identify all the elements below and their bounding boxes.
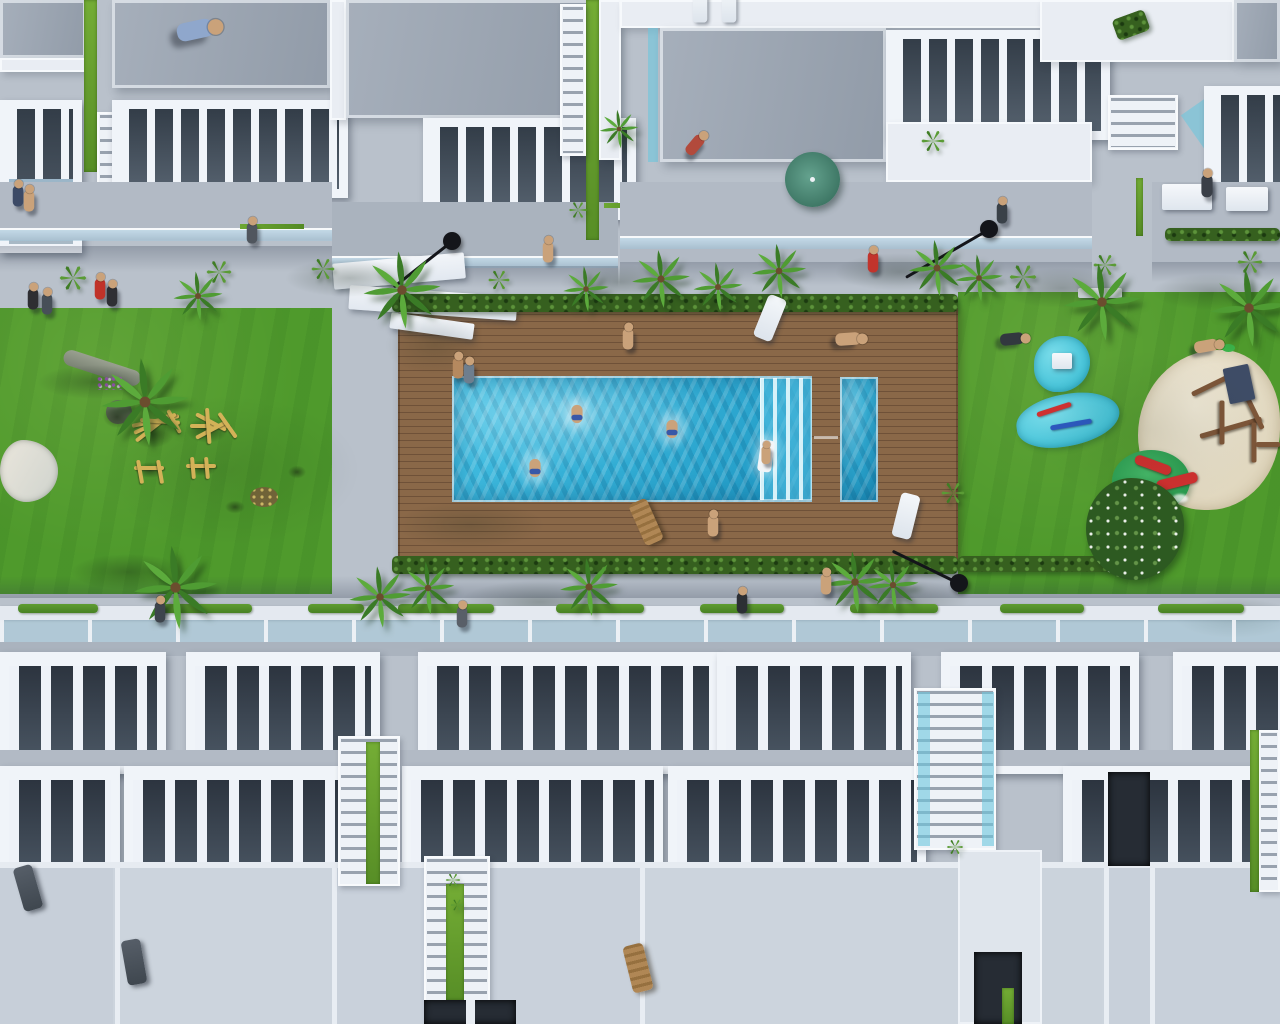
pool-divider-deck [812, 430, 840, 450]
play-structure-post-2 [1220, 401, 1225, 445]
person [107, 286, 118, 307]
hedge-bottom [392, 556, 958, 574]
hedge-top [392, 294, 958, 312]
bottom-glass-row [0, 620, 1280, 642]
top-terrace-4 [620, 182, 1092, 262]
roof-divider-5 [1104, 868, 1109, 1024]
roof-divider-6 [1150, 868, 1155, 1024]
roof-divider-3 [640, 868, 645, 1024]
green-stripe-center-left [586, 0, 599, 240]
person [95, 279, 106, 300]
play-box [1052, 353, 1072, 369]
stair-opening-lower [974, 952, 1022, 1024]
opening-divider [466, 1000, 475, 1024]
bottom-stair-green-1 [366, 742, 380, 884]
glass-balustrade-4 [620, 236, 1092, 249]
top-roof-4-band [620, 0, 1092, 28]
stair-green-lower [1002, 988, 1014, 1024]
lawn-bench [1078, 288, 1122, 298]
patio-umbrella [785, 152, 840, 207]
play-bench [1256, 442, 1280, 447]
center-walk [599, 0, 621, 160]
green-stripe-right [1136, 178, 1143, 236]
green-float [1222, 344, 1235, 352]
top-roof-1 [0, 0, 86, 58]
roof-divider-2 [332, 868, 337, 1024]
building-shadow-3 [620, 262, 1092, 286]
divider-step-line [814, 436, 838, 439]
top-staircase-center [560, 4, 586, 156]
top-roof-corner [1234, 0, 1280, 62]
bottom-mid-strip [0, 750, 1280, 766]
top-roof-4 [660, 28, 886, 162]
bottom-staircase-right [1258, 730, 1280, 892]
walkway-shadow-bottom [0, 576, 1280, 598]
main-swimming-pool [452, 376, 812, 502]
flower-patch [96, 376, 122, 390]
building-shadow-4 [1152, 262, 1280, 282]
top-roof-1-fascia [0, 58, 86, 72]
top-roof-2 [112, 0, 330, 88]
bottom-stair-green-mid [446, 884, 464, 1000]
pool-steps [760, 378, 812, 500]
terrace-hedge-right [1165, 228, 1280, 241]
building-shadow-1 [0, 246, 332, 272]
roof-divider-1 [115, 868, 120, 1024]
person [28, 289, 39, 310]
terrace-sofa [1162, 184, 1212, 210]
top-staircase-right [1108, 95, 1178, 150]
dry-bush [250, 487, 278, 507]
balcony-opening-right [1108, 772, 1150, 866]
stair-glass-right [982, 692, 994, 846]
top-wall-4 [886, 122, 1092, 182]
glass-strip-vertical [648, 28, 658, 162]
planter-line-left [240, 224, 304, 229]
kids-splash-pool [840, 377, 878, 502]
aerial-render-scene [0, 0, 1280, 1024]
bottom-parapet [0, 606, 1280, 620]
rooftop-slab-1 [0, 868, 113, 1024]
stair-glass-left [918, 692, 930, 846]
top-roof-3-edge [330, 0, 346, 120]
green-stripe-1 [84, 0, 97, 172]
terrace-table [1226, 187, 1268, 211]
glass-balustrade-2 [0, 228, 332, 241]
bottom-stair-green-right [1250, 730, 1259, 892]
